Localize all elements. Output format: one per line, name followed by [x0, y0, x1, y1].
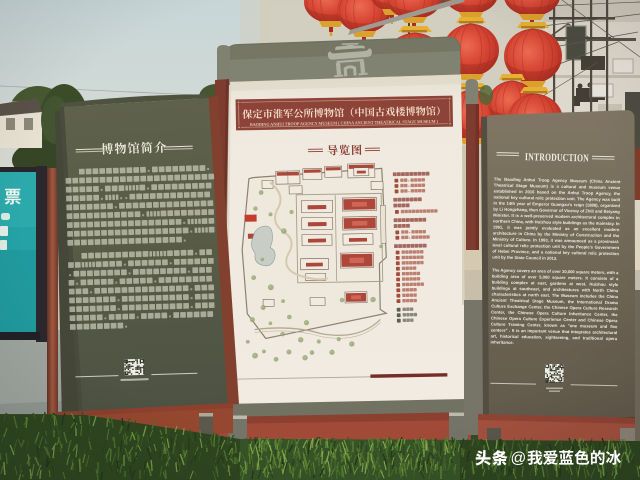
- svg-text:@: @: [511, 450, 527, 467]
